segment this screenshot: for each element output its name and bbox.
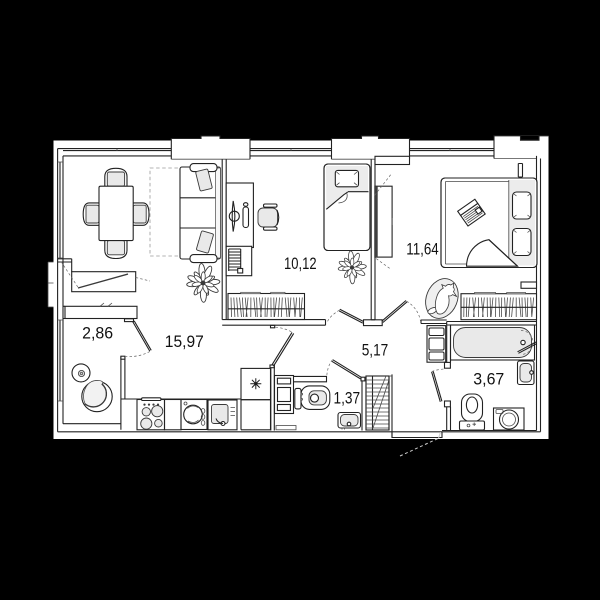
svg-text:1,37: 1,37 (334, 388, 361, 407)
svg-text:2,86: 2,86 (82, 323, 113, 342)
svg-text:15,97: 15,97 (165, 332, 204, 351)
svg-text:3,67: 3,67 (473, 370, 504, 389)
svg-text:5,17: 5,17 (362, 341, 389, 360)
svg-text:11,64: 11,64 (406, 240, 439, 259)
svg-text:10,12: 10,12 (284, 254, 317, 273)
